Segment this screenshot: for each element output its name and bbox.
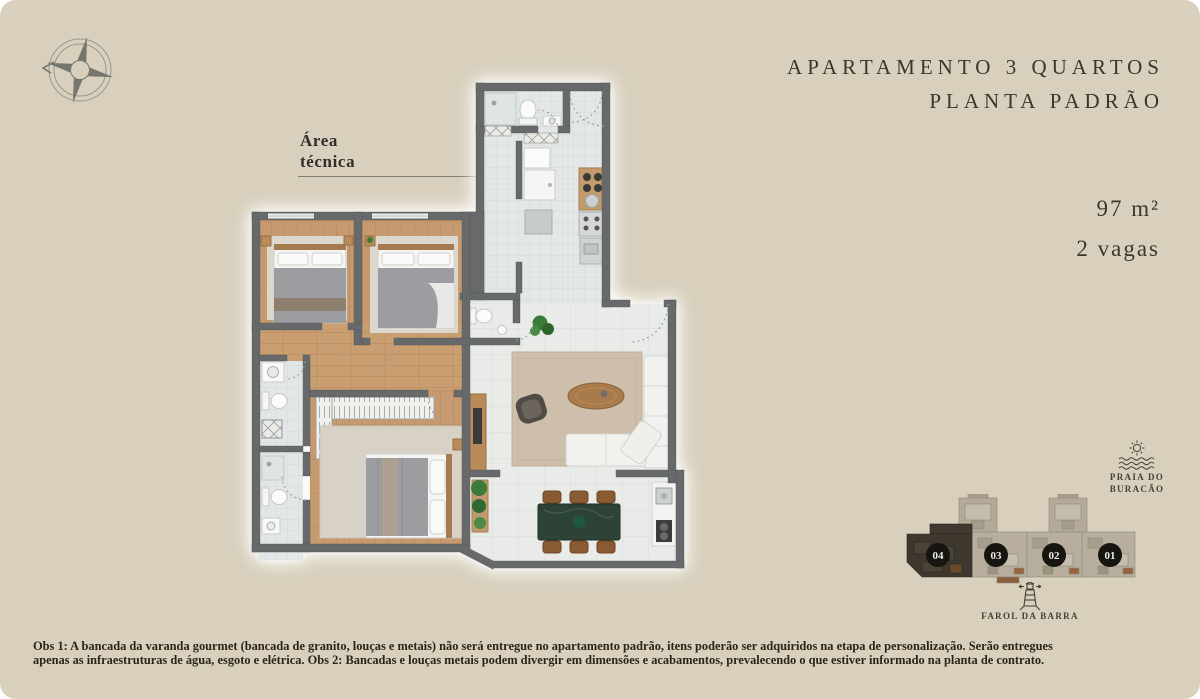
page-title: APARTAMENTO 3 QUARTOS PLANTA PADRÃO <box>787 50 1164 118</box>
site-plan: 04 03 02 01 <box>902 494 1142 586</box>
unit-badge-04: 04 <box>933 550 945 562</box>
unit-badge-03: 03 <box>991 550 1003 562</box>
unit-specs: 97 m² 2 vagas <box>1076 196 1160 262</box>
title-line-2: PLANTA PADRÃO <box>787 84 1164 118</box>
landmark-label: FAROL DA BARRA <box>972 611 1088 621</box>
unit-area: 97 m² <box>1076 196 1160 222</box>
title-line-1: APARTAMENTO 3 QUARTOS <box>787 50 1164 84</box>
legal-footnote: Obs 1: A bancada da varanda gourmet (ban… <box>33 640 1185 667</box>
lighthouse-icon <box>1012 582 1048 610</box>
compass-icon <box>36 26 124 114</box>
beach-label: PRAIA DO BURACÃO <box>1095 471 1179 495</box>
floor-plan <box>232 68 702 588</box>
unit-badge-02: 02 <box>1049 550 1061 562</box>
sun-waves-icon <box>1115 440 1159 470</box>
footnote-line-2: apenas as infraestruturas de água, esgot… <box>33 654 1185 668</box>
footnote-line-1: Obs 1: A bancada da varanda gourmet (ban… <box>33 640 1185 654</box>
marketing-page: APARTAMENTO 3 QUARTOS PLANTA PADRÃO 97 m… <box>0 0 1200 699</box>
unit-parking: 2 vagas <box>1076 236 1160 262</box>
unit-badge-01: 01 <box>1105 550 1116 562</box>
